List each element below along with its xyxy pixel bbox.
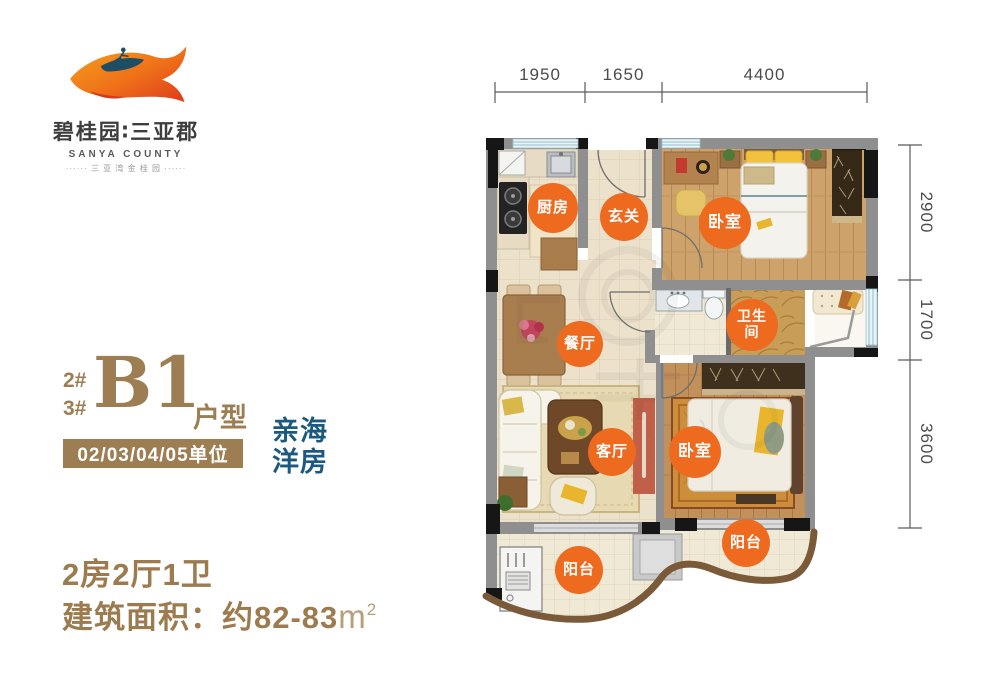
- room-label-living: 客厅: [588, 428, 636, 476]
- floorplan-page: { "logo": { "icon": "bird-surfer-logo", …: [0, 0, 1000, 700]
- room-label-bathroom: 卫生间: [726, 299, 778, 351]
- floorplan-graphic: [0, 0, 1000, 700]
- dim-top-3: 4400: [662, 65, 867, 85]
- dim-top-2: 1650: [585, 65, 662, 85]
- dim-right-1: 2900: [916, 145, 936, 280]
- dim-top-1: 1950: [495, 65, 585, 85]
- room-label-bedroom-2: 卧室: [669, 426, 721, 478]
- room-label-entry: 玄关: [600, 193, 648, 241]
- dim-right-2: 1700: [916, 280, 936, 360]
- room-label-dining: 餐厅: [557, 321, 603, 367]
- entry-door-gap: [588, 136, 646, 150]
- room-label-balcony-right: 阳台: [722, 519, 770, 567]
- dim-right-3: 3600: [916, 360, 936, 528]
- room-label-kitchen: 厨房: [528, 183, 578, 233]
- room-label-balcony-left: 阳台: [555, 546, 603, 594]
- room-label-bedroom-1: 卧室: [699, 197, 751, 249]
